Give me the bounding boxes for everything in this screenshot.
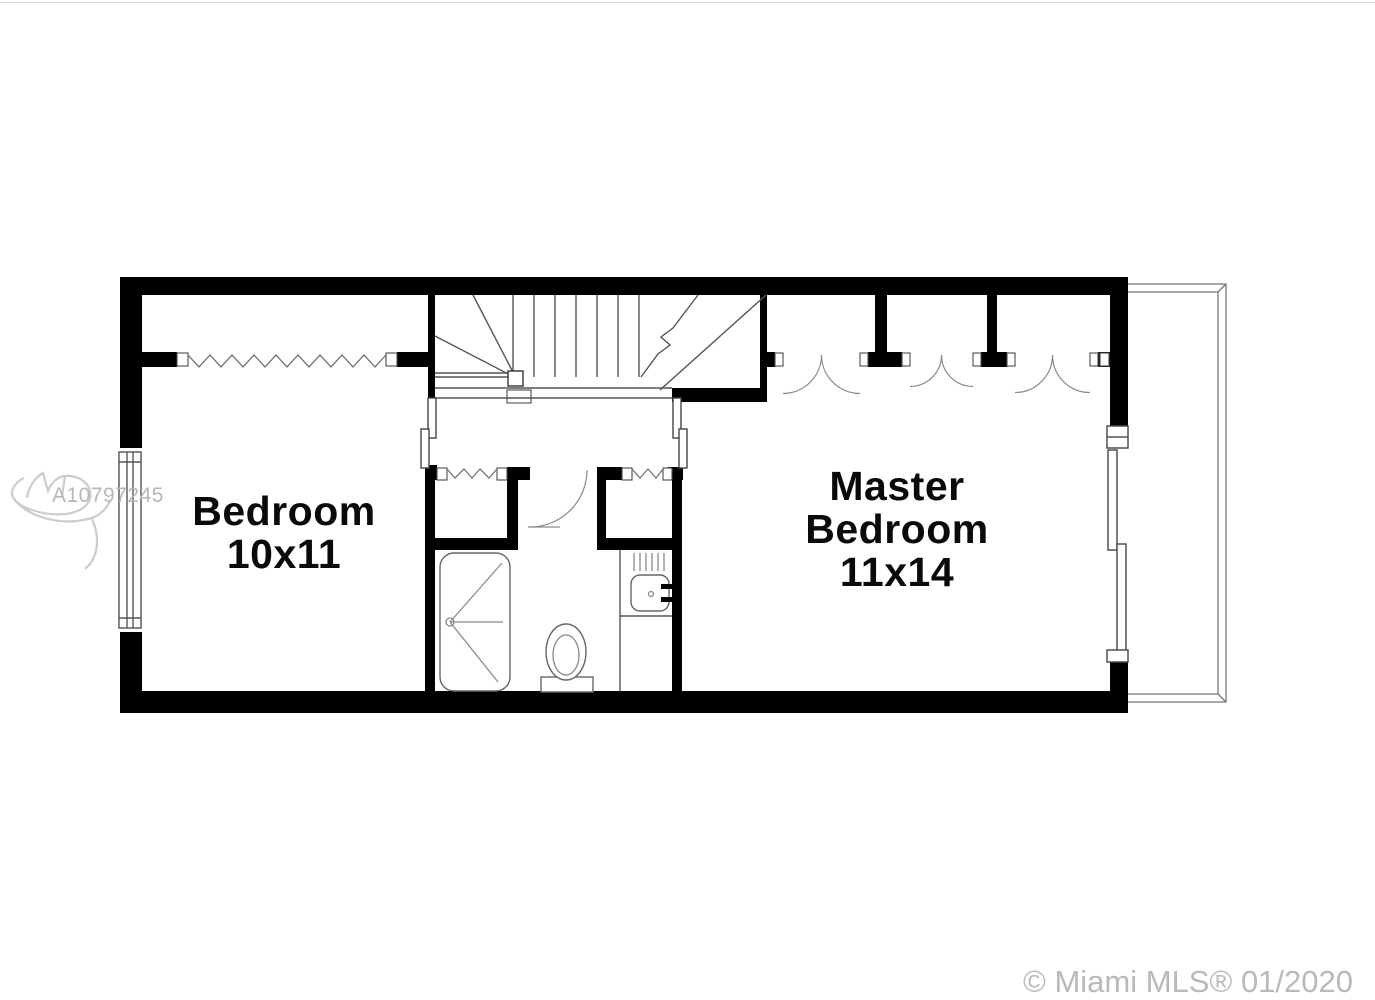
exterior-wall-left-lower xyxy=(120,632,142,713)
exterior-wall-bottom xyxy=(120,691,1128,713)
master-entry-sliding-door-icon xyxy=(673,398,687,468)
shower-icon xyxy=(440,553,510,691)
hall-closet-left-accordion-door-icon xyxy=(447,469,497,478)
bedroom-label-size: 10x11 xyxy=(134,533,434,576)
master-closet-jamb-4 xyxy=(973,353,981,366)
hall-wall-segment-left xyxy=(507,467,530,480)
master-closet-front-wall-b xyxy=(868,352,902,367)
stair-up-line xyxy=(660,295,766,390)
hall-closet-right-bottom-wall xyxy=(597,538,673,550)
master-closet-jamb-5 xyxy=(1007,353,1015,366)
master-west-wall xyxy=(672,480,682,691)
hall-closet-right-jamb-b xyxy=(663,468,672,480)
exterior-wall-right-upper xyxy=(1110,277,1128,428)
hall-closet-left-bottom-wall xyxy=(435,538,518,550)
hall-closet-right-accordion-door-icon xyxy=(632,469,663,478)
hall-wall-segment-right xyxy=(597,467,622,480)
master-bedroom-label: Master Bedroom 11x14 xyxy=(747,465,1047,594)
hall-closet-right-jamb-a xyxy=(622,468,632,480)
bedroom-entry-sliding-door-icon xyxy=(421,398,436,468)
master-closet-double-doors-icon xyxy=(783,355,1090,394)
master-label-line1: Master xyxy=(747,465,1047,508)
master-closet-front-wall-a xyxy=(767,352,775,367)
vanity-sink-icon xyxy=(620,550,673,691)
master-label-line3: 11x14 xyxy=(747,551,1047,594)
master-closet-jamb-2 xyxy=(860,353,868,366)
hall-closet-left-jamb-a xyxy=(437,468,447,480)
master-closet-front-wall-c xyxy=(981,352,1007,367)
stairs xyxy=(435,295,766,398)
master-closet-jamb-1 xyxy=(775,353,783,366)
master-closet-jamb-6 xyxy=(1090,353,1098,366)
master-closet-divider-1 xyxy=(875,295,887,352)
bedroom-closet-accordion-door-icon xyxy=(188,355,386,367)
stair-landing-wall xyxy=(672,388,767,402)
toilet-icon xyxy=(541,624,593,692)
hall-closet-left-jamb-b xyxy=(497,468,507,480)
bedroom-east-wall xyxy=(428,295,435,398)
master-label-line2: Bedroom xyxy=(747,508,1047,551)
exterior-wall-left-upper xyxy=(120,277,142,448)
faucet-handle-bottom xyxy=(661,597,673,602)
faucet-handle-top xyxy=(661,584,673,589)
stair-newel-post xyxy=(508,371,523,386)
bedroom-label: Bedroom 10x11 xyxy=(134,490,434,576)
landing-rail-post xyxy=(507,390,531,403)
bedroom-closet-jamb-left xyxy=(177,353,188,366)
balcony-outline xyxy=(1128,284,1226,702)
bedroom-label-name: Bedroom xyxy=(134,490,434,533)
bathroom-door-icon xyxy=(528,470,587,527)
bedroom-closet-wall-stub-left xyxy=(142,352,177,367)
door-jambs xyxy=(177,353,1109,480)
master-closet-jamb-3 xyxy=(902,353,910,366)
winder-tread-line-1 xyxy=(473,295,516,378)
exterior-wall-right-lower xyxy=(1110,658,1128,713)
stairwell-closet-divider xyxy=(760,295,767,388)
master-closet-divider-2 xyxy=(987,295,997,352)
winder-tread-line-2 xyxy=(435,336,516,378)
sliding-glass-door-icon xyxy=(1107,426,1128,662)
exterior-wall-top xyxy=(120,277,1128,295)
floor-plan-page: A10797245 Bedroom 10x11 Master Bedroom 1… xyxy=(0,0,1375,1000)
copyright-text: © Miami MLS® 01/2020 xyxy=(1023,964,1353,1000)
stair-break-line xyxy=(641,295,698,377)
bedroom-closet-jamb-right xyxy=(386,353,397,366)
master-closet-jamb-7 xyxy=(1100,353,1109,366)
